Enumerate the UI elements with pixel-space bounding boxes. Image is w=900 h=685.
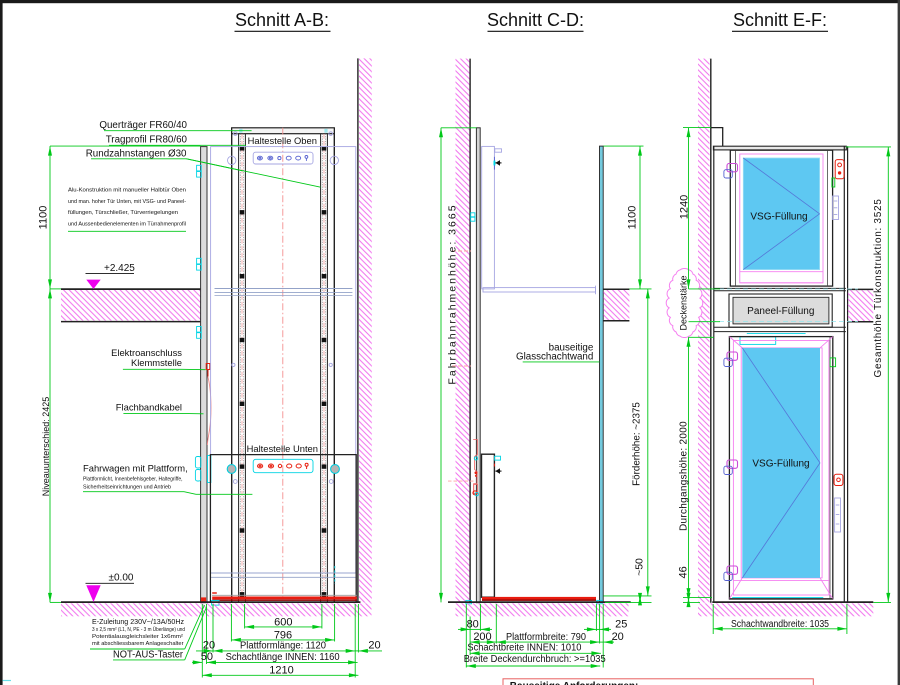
svg-text:200: 200 [473, 631, 491, 643]
svg-text:~50: ~50 [633, 558, 645, 576]
svg-text:±0.00: ±0.00 [109, 572, 134, 583]
svg-text:VSG-Füllung: VSG-Füllung [750, 211, 807, 222]
svg-text:Schachtwandbreite: 1035: Schachtwandbreite: 1035 [731, 619, 829, 630]
svg-text:Bauseitige Anforderungen:: Bauseitige Anforderungen: [510, 681, 639, 685]
svg-text:Niveauunterschied: 2425: Niveauunterschied: 2425 [41, 397, 51, 497]
svg-text:Förderhöhe: ~2375: Förderhöhe: ~2375 [631, 402, 642, 486]
svg-text:+2.425: +2.425 [104, 263, 135, 274]
svg-text:Durchgangshöhe: 2000: Durchgangshöhe: 2000 [678, 421, 689, 531]
svg-text:Glasschachtwand: Glasschachtwand [516, 352, 593, 363]
svg-text:und man. hoher Tür Unten, mit: und man. hoher Tür Unten, mit VSG- und P… [68, 199, 186, 205]
svg-text:Fahrbahnrahmenhöhe: 3665: Fahrbahnrahmenhöhe: 3665 [446, 203, 458, 384]
svg-text:20: 20 [612, 631, 624, 643]
svg-text:Sicherheitseinrichtungen und A: Sicherheitseinrichtungen und Antrieb [83, 485, 171, 491]
svg-text:Alu-Konstruktion mit manueller: Alu-Konstruktion mit manueller Halbtür O… [68, 188, 186, 194]
svg-text:Deckenstärke: Deckenstärke [679, 275, 689, 330]
svg-text:Plattformlänge: 1120: Plattformlänge: 1120 [240, 641, 326, 652]
svg-text:1100: 1100 [627, 206, 639, 230]
svg-text:Fahrwagen mit Plattform,: Fahrwagen mit Plattform, [83, 462, 188, 473]
svg-text:Haltestelle Oben: Haltestelle Oben [248, 135, 317, 146]
svg-text:Schnitt A-B:: Schnitt A-B: [235, 10, 329, 30]
svg-text:E-Zuleitung 230V~/13A/50Hz: E-Zuleitung 230V~/13A/50Hz [92, 617, 184, 626]
svg-text:Plattformlicht, Innenbefehlsge: Plattformlicht, Innenbefehlsgeber, Halte… [83, 476, 183, 482]
svg-text:1240: 1240 [678, 195, 690, 219]
svg-text:VSG-Füllung: VSG-Füllung [752, 459, 809, 470]
svg-text:20: 20 [368, 640, 380, 652]
svg-text:50: 50 [201, 651, 213, 663]
svg-text:Gesamthöhe Türkonstruktion: 35: Gesamthöhe Türkonstruktion: 3525 [873, 199, 884, 378]
svg-text:Rundzahnstangen Ø30: Rundzahnstangen Ø30 [86, 148, 187, 159]
svg-text:Tragprofil FR80/60: Tragprofil FR80/60 [106, 135, 188, 146]
svg-text:Schachtlänge INNEN: 1160: Schachtlänge INNEN: 1160 [226, 652, 340, 663]
svg-text:3 x 2,5 mm² (L1, N, PE - 3 m Ü: 3 x 2,5 mm² (L1, N, PE - 3 m Überlänge) … [92, 626, 185, 633]
svg-text:Breite Deckendurchbruch: >=103: Breite Deckendurchbruch: >=1035 [464, 654, 606, 665]
svg-text:80: 80 [467, 619, 479, 631]
svg-text:46: 46 [677, 566, 689, 578]
svg-text:füllungen, Türschließer, Türve: füllungen, Türschließer, Türverriegelung… [68, 210, 178, 216]
svg-text:Schachtbreite INNEN: 1010: Schachtbreite INNEN: 1010 [467, 643, 581, 654]
svg-text:Schnitt C-D:: Schnitt C-D: [487, 10, 584, 30]
svg-text:Schnitt E-F:: Schnitt E-F: [733, 10, 827, 30]
svg-text:NOT-AUS-Taster: NOT-AUS-Taster [113, 649, 184, 660]
svg-text:Plattformbreite: 790: Plattformbreite: 790 [506, 632, 586, 643]
svg-text:Flachbandkabel: Flachbandkabel [116, 402, 182, 413]
svg-text:Elektroanschluss: Elektroanschluss [111, 347, 182, 358]
svg-text:und Aussenbedienelementen im T: und Aussenbedienelementen im Türrahmenpr… [68, 221, 186, 227]
svg-text:1100: 1100 [38, 206, 50, 230]
svg-text:20: 20 [203, 640, 215, 652]
svg-text:Haltestelle Unten: Haltestelle Unten [247, 443, 318, 454]
svg-text:Querträger FR60/40: Querträger FR60/40 [99, 120, 187, 131]
svg-text:Potentialausgleichsleiter 1x6m: Potentialausgleichsleiter 1x6mm² [92, 634, 183, 640]
svg-text:Klemmstelle: Klemmstelle [131, 357, 182, 368]
svg-text:Paneel-Füllung: Paneel-Füllung [747, 306, 814, 317]
svg-text:25: 25 [615, 619, 627, 631]
svg-text:1210: 1210 [269, 664, 293, 676]
svg-text:mit abschliessbarem Anlagescha: mit abschliessbarem Anlageschalter [92, 641, 184, 647]
